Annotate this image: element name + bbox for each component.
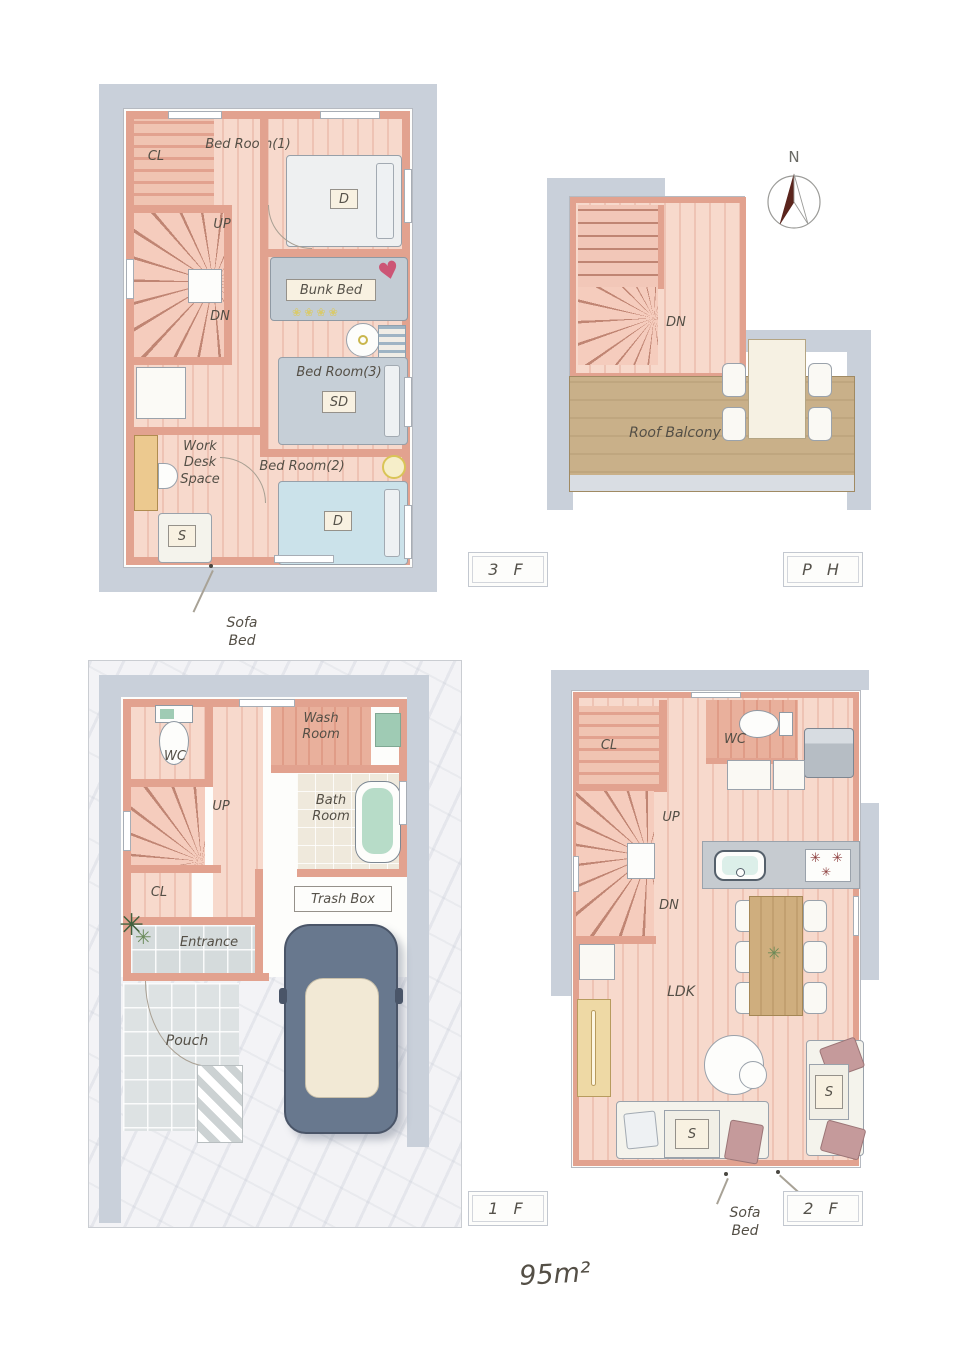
wall xyxy=(224,213,232,365)
label-cl: CL xyxy=(589,738,629,754)
outer-band xyxy=(859,803,879,980)
window xyxy=(274,555,334,563)
floor-tag-1f: 1 F xyxy=(468,1191,548,1226)
label-pouch: Pouch xyxy=(147,1033,227,1051)
sofa-bed-note: Sofa Bed xyxy=(715,1205,775,1240)
label-dn: DN xyxy=(200,309,240,325)
bed-pillow xyxy=(376,163,394,239)
floor-tag-ph: P H xyxy=(783,552,863,587)
cabinet xyxy=(773,760,805,790)
window xyxy=(168,111,222,119)
plan-paper: CL Bed Room(1) D UP DN Bunk Bed ♥ ❀❀❀❀ xyxy=(123,108,413,568)
stair-landing xyxy=(188,269,222,303)
plan-paper: DN xyxy=(569,196,745,378)
cabinet xyxy=(579,944,615,980)
wall xyxy=(658,205,664,289)
floor-plan-3f: CL Bed Room(1) D UP DN Bunk Bed ♥ ❀❀❀❀ xyxy=(99,84,437,592)
label-up: UP xyxy=(202,217,242,233)
wall xyxy=(260,119,268,249)
staircase-winder xyxy=(578,287,658,365)
wall xyxy=(123,973,269,981)
stair-landing xyxy=(627,843,655,879)
wall xyxy=(131,779,213,787)
label-dn: DN xyxy=(651,898,687,914)
label-up: UP xyxy=(653,810,689,826)
floor-plan-page: CL Bed Room(1) D UP DN Bunk Bed ♥ ❀❀❀❀ xyxy=(0,0,960,1357)
wall xyxy=(260,249,402,257)
compass: N xyxy=(760,148,830,240)
sofa-pillow xyxy=(623,1110,659,1149)
label-cl: CL xyxy=(136,149,176,165)
toilet-tank-lid xyxy=(160,709,174,719)
label-cl: CL xyxy=(139,885,179,901)
total-area-label: 95m² xyxy=(499,1255,611,1294)
window xyxy=(404,377,412,427)
leader-dot xyxy=(776,1170,780,1174)
stool-ring-icon xyxy=(358,335,368,345)
chair xyxy=(722,363,746,397)
compass-north-label: N xyxy=(784,148,804,167)
wall xyxy=(131,917,263,925)
burner-icon: ✳ xyxy=(810,852,821,865)
entry-steps xyxy=(197,1065,243,1143)
sofa-mark-s: S xyxy=(815,1075,843,1109)
kitchen-sink xyxy=(714,850,766,881)
compass-rose-icon xyxy=(760,166,828,236)
burner-icon: ✳ xyxy=(832,852,843,865)
outer-band xyxy=(551,670,869,690)
wall xyxy=(255,869,263,977)
label-bedroom2: Bed Room(2) xyxy=(242,459,362,475)
label-wc: WC xyxy=(153,749,197,765)
floor-plan-1f: WC Wash Room Bath Room UP CL ✳ ✳ Entranc… xyxy=(88,660,462,1228)
window xyxy=(573,856,579,892)
chair xyxy=(803,941,827,973)
leader-dot xyxy=(724,1172,728,1176)
window xyxy=(320,111,380,119)
plant-icon: ✳ xyxy=(767,946,781,963)
outer-band xyxy=(407,675,429,1147)
cabinet-handle xyxy=(591,1010,596,1086)
label-roof-balcony: Roof Balcony xyxy=(610,425,740,443)
outer-band xyxy=(551,670,571,996)
sofa-pillow-dark xyxy=(724,1119,764,1164)
car xyxy=(284,924,398,1134)
chair xyxy=(722,407,746,441)
work-desk xyxy=(134,435,158,511)
bathtub-water xyxy=(362,788,393,854)
window xyxy=(239,699,295,707)
outer-band xyxy=(99,675,429,697)
floor-tag-2f: 2 F xyxy=(783,1191,863,1226)
wall xyxy=(134,427,260,435)
ornament-icon xyxy=(382,455,406,479)
chair xyxy=(803,900,827,932)
refrigerator xyxy=(804,728,854,778)
window xyxy=(404,505,412,559)
burner-icon: ✳ xyxy=(821,866,831,878)
window xyxy=(404,169,412,223)
roof-balcony: Roof Balcony xyxy=(569,376,855,492)
sofa-bed-note: Sofa Bed xyxy=(212,615,272,650)
staircase xyxy=(131,787,205,865)
label-up: UP xyxy=(201,799,241,815)
cabinet xyxy=(727,760,771,790)
wall xyxy=(134,357,232,365)
wall xyxy=(576,936,656,944)
faucet-icon xyxy=(736,868,745,877)
floor-plan-2f: CL WC UP DN ✳ ✳ ✳ LDK xyxy=(551,660,879,1185)
leader-dot xyxy=(209,564,213,568)
bed-pillow xyxy=(384,489,400,557)
window xyxy=(126,259,134,299)
bed-mark-sd: SD xyxy=(322,391,356,413)
wall xyxy=(205,707,213,787)
bunk-bed-mark: Bunk Bed xyxy=(286,279,376,301)
label-wc: WC xyxy=(713,732,757,748)
floor-tag-3f: 3 F xyxy=(468,552,548,587)
stove: ✳ ✳ ✳ xyxy=(805,849,851,882)
sofa-cushion: S xyxy=(809,1064,849,1120)
desk xyxy=(136,367,186,419)
label-dn: DN xyxy=(656,315,696,331)
bathtub xyxy=(355,781,401,863)
window xyxy=(853,896,859,936)
trash-box-mark: Trash Box xyxy=(294,886,392,912)
chair xyxy=(808,363,832,397)
car-mirror xyxy=(279,988,287,1004)
bed-mark-d: D xyxy=(324,511,352,531)
staircase xyxy=(578,205,658,287)
wall xyxy=(260,257,268,457)
tall-cabinet xyxy=(577,999,611,1097)
balcony-edge xyxy=(570,475,854,491)
label-wash-room: Wash Room xyxy=(291,711,351,744)
mirror xyxy=(375,713,401,747)
label-ldk: LDK xyxy=(655,984,707,1002)
sofa-mark-s: S xyxy=(168,525,196,547)
window xyxy=(691,692,741,698)
flower-row-icon: ❀❀❀❀ xyxy=(292,307,341,318)
wall xyxy=(659,700,667,790)
label-bedroom1: Bed Room(1) xyxy=(188,137,308,153)
sofa-cushion: S xyxy=(664,1110,720,1158)
label-entrance: Entrance xyxy=(167,935,251,951)
toilet-tank xyxy=(779,712,793,736)
car-mirror xyxy=(395,988,403,1004)
window xyxy=(399,781,407,825)
bed-mark-d: D xyxy=(330,189,358,209)
wall xyxy=(271,765,407,773)
round-table-small xyxy=(739,1061,767,1089)
wall xyxy=(131,865,221,873)
sofa-mark-s: S xyxy=(675,1119,709,1149)
wall xyxy=(260,449,402,457)
outer-band xyxy=(99,675,121,1223)
wall xyxy=(297,869,407,877)
window xyxy=(123,811,131,851)
balcony-table xyxy=(748,339,806,439)
plant-icon: ✳ xyxy=(135,927,152,947)
chair xyxy=(803,982,827,1014)
label-bedroom3: Bed Room(3) xyxy=(274,365,404,381)
wall xyxy=(134,205,232,213)
label-bath-room: Bath Room xyxy=(303,793,359,826)
chair xyxy=(808,407,832,441)
car-roof xyxy=(305,978,379,1098)
